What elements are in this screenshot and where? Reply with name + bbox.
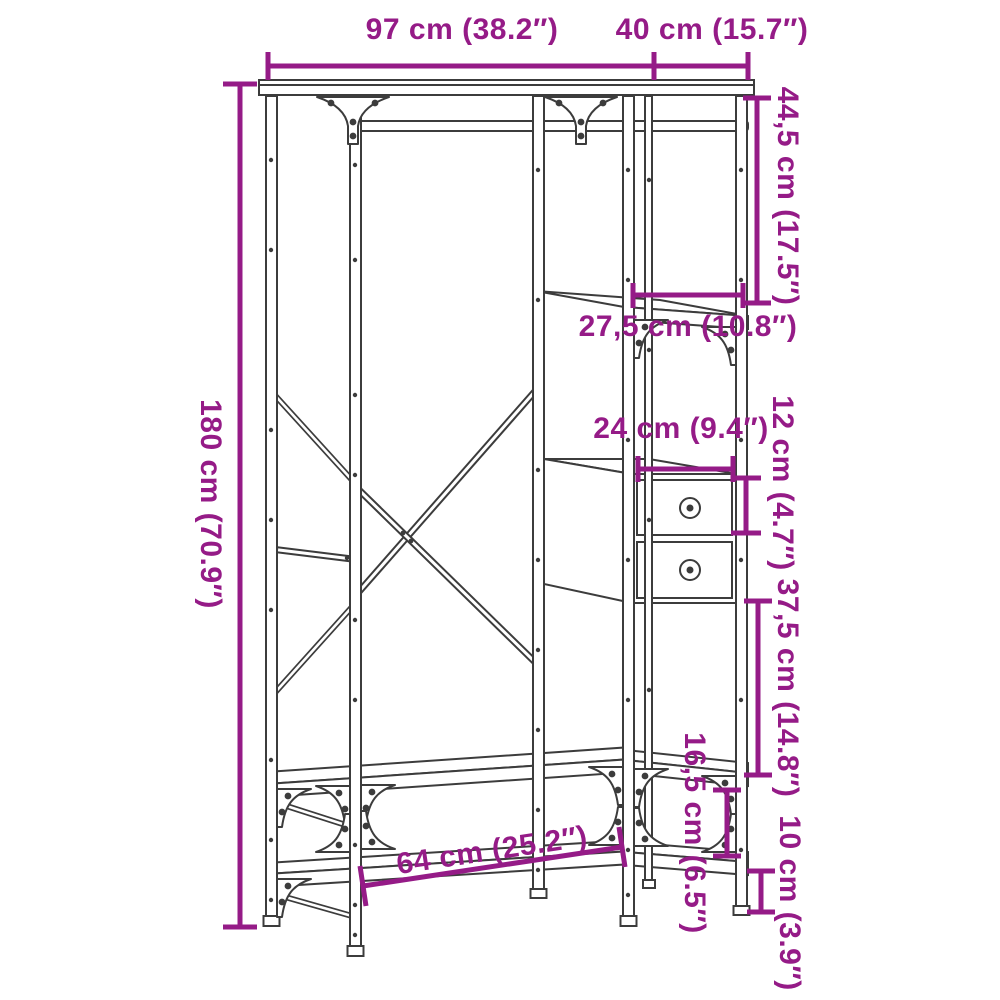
post-center (533, 96, 544, 889)
cross-brace (357, 389, 537, 664)
dim-label-height-left: 180 cm (70.9″) (195, 399, 225, 609)
dim-label-lower-shelf-clearance: 16,5 cm (6.5″) (679, 732, 709, 933)
dim-line-middle-clearance (744, 601, 772, 775)
post-left (266, 96, 277, 916)
post-left-center (350, 96, 361, 946)
dim-label-drawer-width: 24 cm (9.4″) (593, 414, 768, 444)
dim-label-depth-top: 40 cm (15.7″) (616, 15, 809, 45)
post-right-center (623, 96, 634, 916)
top-panel (259, 80, 754, 95)
dim-line-ground-clearance (747, 871, 775, 912)
dim-label-shelf-width-right: 27,5 cm (10.8″) (579, 312, 798, 342)
corner-gussets (277, 320, 736, 917)
dim-label-drawer-height: 12 cm (4.7″) (767, 395, 797, 570)
dim-label-middle-clearance: 37,5 cm (14.8″) (772, 579, 802, 798)
dim-label-top-shelf-clearance: 44,5 cm (17.5″) (772, 87, 802, 306)
post-back-right (645, 96, 652, 880)
product-dimension-diagram: 97 cm (38.2″) 40 cm (15.7″) 180 cm (70.9… (0, 0, 1000, 1000)
dim-line-height-left (223, 84, 257, 927)
dim-line-width-depth-top (268, 52, 748, 80)
dim-label-width-top: 97 cm (38.2″) (366, 15, 559, 45)
dim-label-ground-clearance: 10 cm (3.9″) (774, 815, 804, 990)
hanger-rod (348, 121, 748, 131)
